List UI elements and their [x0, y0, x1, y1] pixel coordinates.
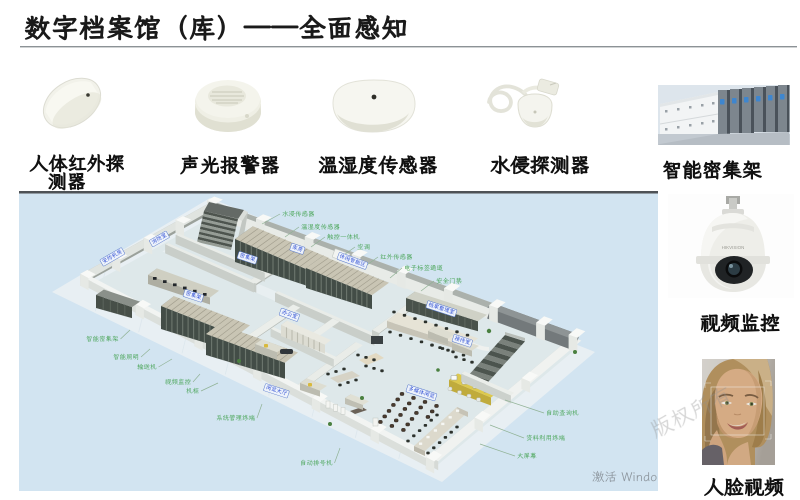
svg-text:HIKVISION: HIKVISION: [722, 245, 745, 250]
